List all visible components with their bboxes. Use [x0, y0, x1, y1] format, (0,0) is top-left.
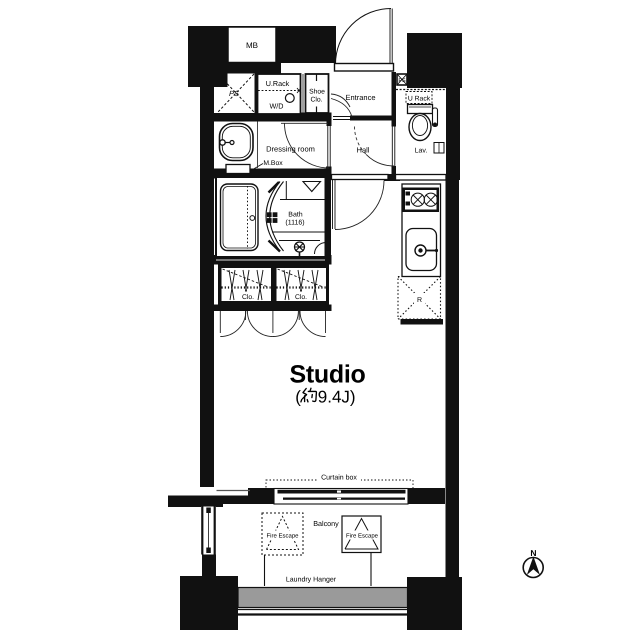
svg-text:Curtain box: Curtain box — [321, 474, 357, 482]
svg-text:9.4J): 9.4J) — [318, 388, 356, 407]
svg-text:Clo.: Clo. — [310, 97, 322, 104]
svg-text:W/D: W/D — [270, 102, 284, 111]
svg-text:Bath: Bath — [288, 211, 303, 219]
svg-text:(: ( — [295, 388, 301, 407]
svg-text:U.Rack: U.Rack — [266, 79, 290, 88]
svg-text:R: R — [417, 297, 422, 304]
svg-text:Entrance: Entrance — [345, 93, 375, 102]
svg-text:MB: MB — [246, 41, 258, 50]
svg-text:N: N — [530, 548, 536, 558]
svg-text:Shoe: Shoe — [309, 89, 325, 96]
svg-text:Balcony: Balcony — [313, 519, 339, 528]
svg-text:Laundry Hanger: Laundry Hanger — [286, 576, 337, 584]
svg-text:U Rack: U Rack — [408, 96, 431, 103]
svg-text:Fire Escape: Fire Escape — [266, 533, 299, 540]
svg-text:Studio: Studio — [290, 361, 366, 389]
svg-text:Lav.: Lav. — [415, 148, 428, 155]
svg-text:Fire Escape: Fire Escape — [346, 533, 379, 540]
svg-text:(1116): (1116) — [285, 219, 304, 227]
svg-text:Clo.: Clo. — [242, 294, 254, 301]
svg-text:Hall: Hall — [357, 146, 370, 155]
svg-text:PS: PS — [398, 78, 406, 84]
svg-text:PS: PS — [229, 89, 239, 98]
svg-text:Clo.: Clo. — [295, 294, 307, 301]
svg-text:M.Box: M.Box — [263, 160, 283, 167]
